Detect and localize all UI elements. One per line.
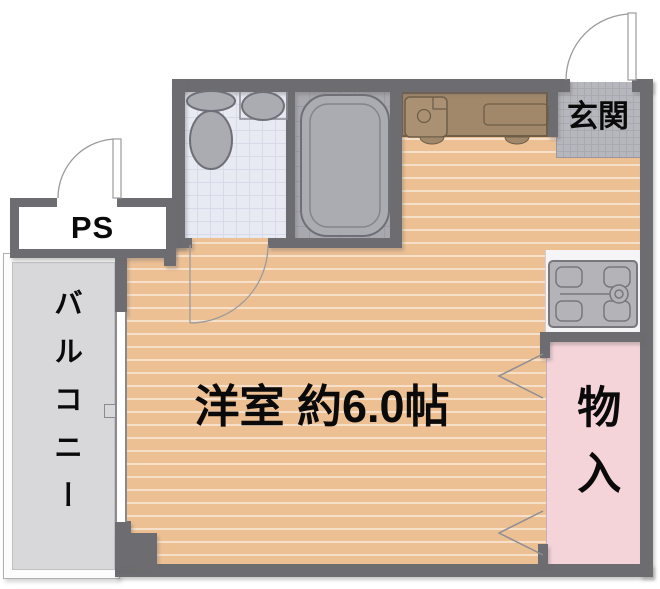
stove-icon <box>484 104 548 125</box>
storage-folding-door-bottom <box>499 511 543 555</box>
main-room-label: 洋室 約6.0帖 <box>140 383 504 430</box>
wash-basin-icon <box>242 92 284 120</box>
bathroom-door-arc <box>190 245 268 323</box>
pan-drain-outer <box>610 285 628 303</box>
bathtub-icon <box>301 95 389 236</box>
kitchen-sink-icon <box>405 97 447 137</box>
storage-label: 物入 <box>571 384 617 516</box>
fixtures-layer <box>0 0 660 589</box>
balcony-label: バルコニー <box>50 288 80 528</box>
entrance-door-leaf <box>628 13 636 80</box>
ps-door-leaf <box>113 139 121 198</box>
toilet-tank-icon <box>187 91 235 111</box>
toilet-icon <box>190 111 232 169</box>
entrance-label: 玄関 <box>556 101 640 134</box>
entrance-door-arc <box>566 14 632 80</box>
cabinet-handle-left <box>420 137 444 144</box>
storage-folding-door-top <box>499 354 543 398</box>
ps-door-arc <box>58 139 117 198</box>
floor-plan: PS <box>0 0 660 589</box>
cabinet-handle-right <box>505 137 529 144</box>
